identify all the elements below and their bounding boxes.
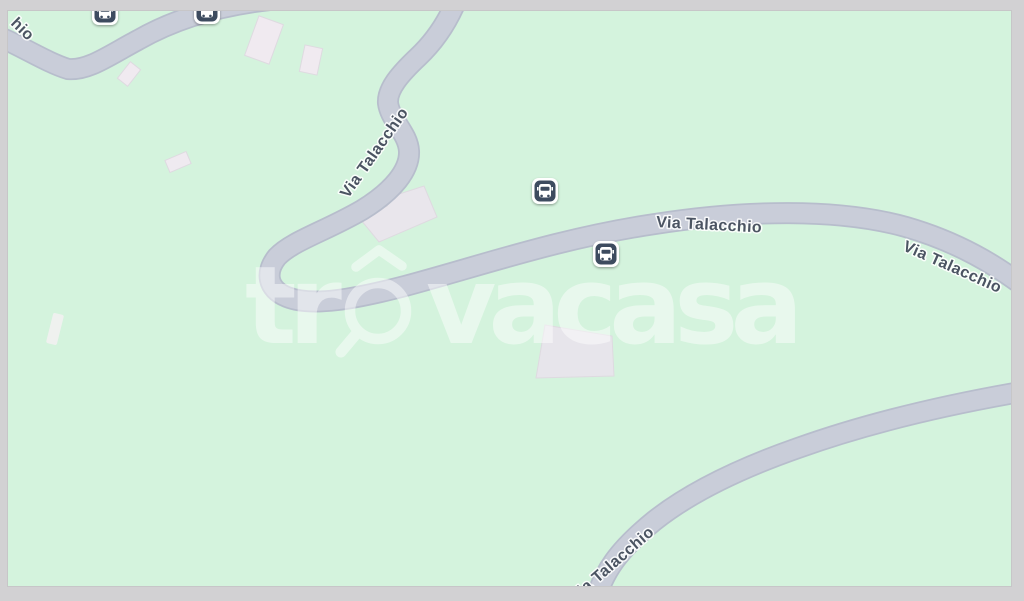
bus-stop-icon[interactable]	[532, 178, 558, 204]
bus-stop-icon[interactable]	[92, 11, 118, 25]
window-frame: tr vacasa hio Via Talacchio Via Talacchi…	[0, 0, 1024, 601]
trovacasa-watermark: tr vacasa	[245, 244, 795, 369]
bus-stop-icon[interactable]	[593, 241, 619, 267]
map-viewport[interactable]: tr vacasa hio Via Talacchio Via Talacchi…	[8, 11, 1011, 586]
watermark-text-prefix: tr	[245, 244, 342, 369]
bus-stop-icon[interactable]	[194, 11, 220, 24]
map-canvas: tr vacasa hio Via Talacchio Via Talacchi…	[8, 11, 1011, 586]
